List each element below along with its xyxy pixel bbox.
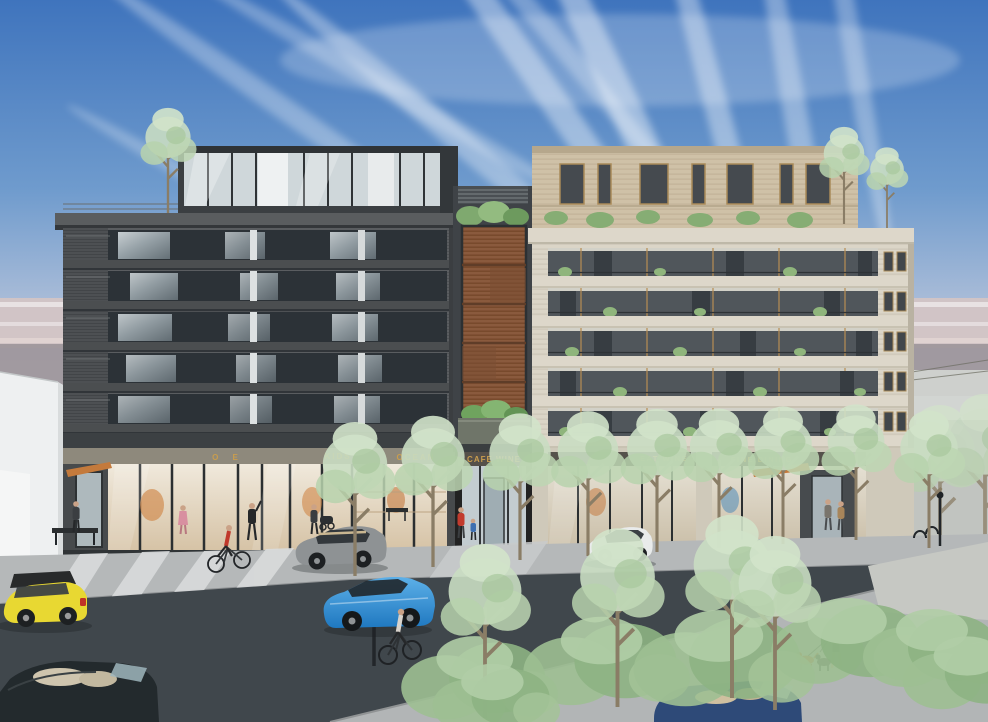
left-penthouse (178, 146, 458, 213)
right-penthouse (532, 146, 858, 230)
sign-left-a: O E (212, 453, 244, 462)
wood-louver-panel (462, 226, 526, 420)
right-parapet (528, 228, 914, 244)
floor-rows (63, 230, 455, 433)
scene: O E KIDS OCEAN CAFE WINE (0, 0, 988, 722)
left-facade (63, 228, 455, 433)
rendering-canvas: O E KIDS OCEAN CAFE WINE (0, 0, 988, 722)
